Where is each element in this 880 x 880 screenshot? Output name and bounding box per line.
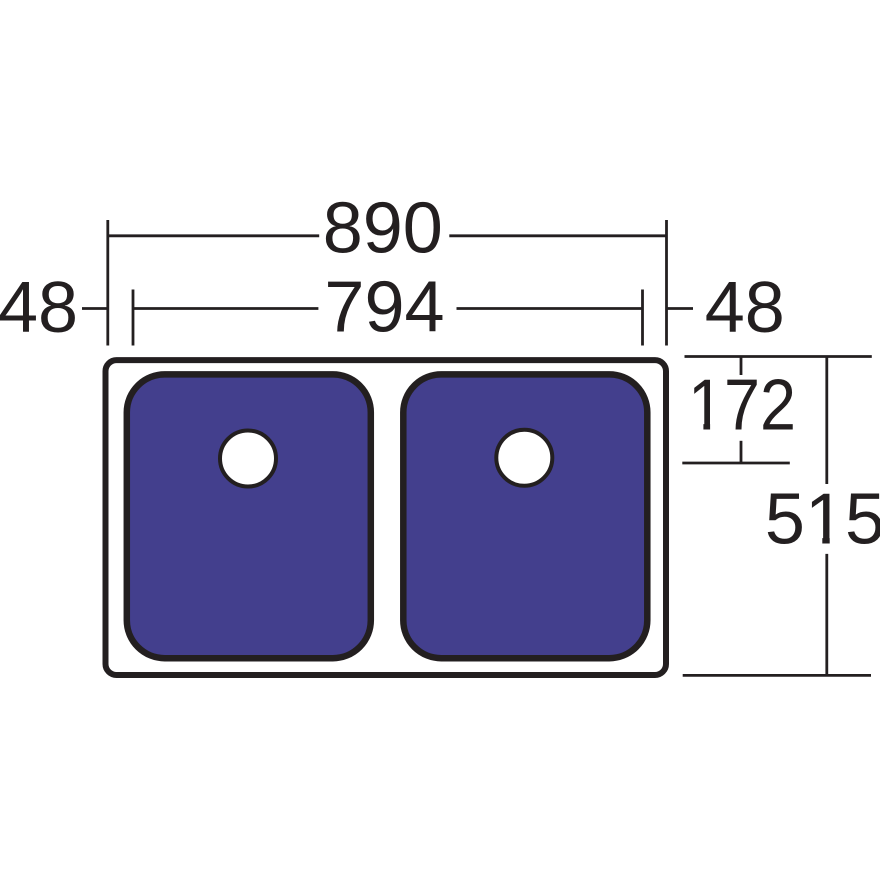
svg-text:515: 515 [765, 480, 880, 560]
svg-text:172: 172 [688, 366, 796, 446]
svg-text:48: 48 [0, 268, 78, 348]
svg-text:48: 48 [705, 268, 785, 348]
svg-text:890: 890 [323, 189, 443, 269]
svg-text:794: 794 [324, 268, 444, 348]
